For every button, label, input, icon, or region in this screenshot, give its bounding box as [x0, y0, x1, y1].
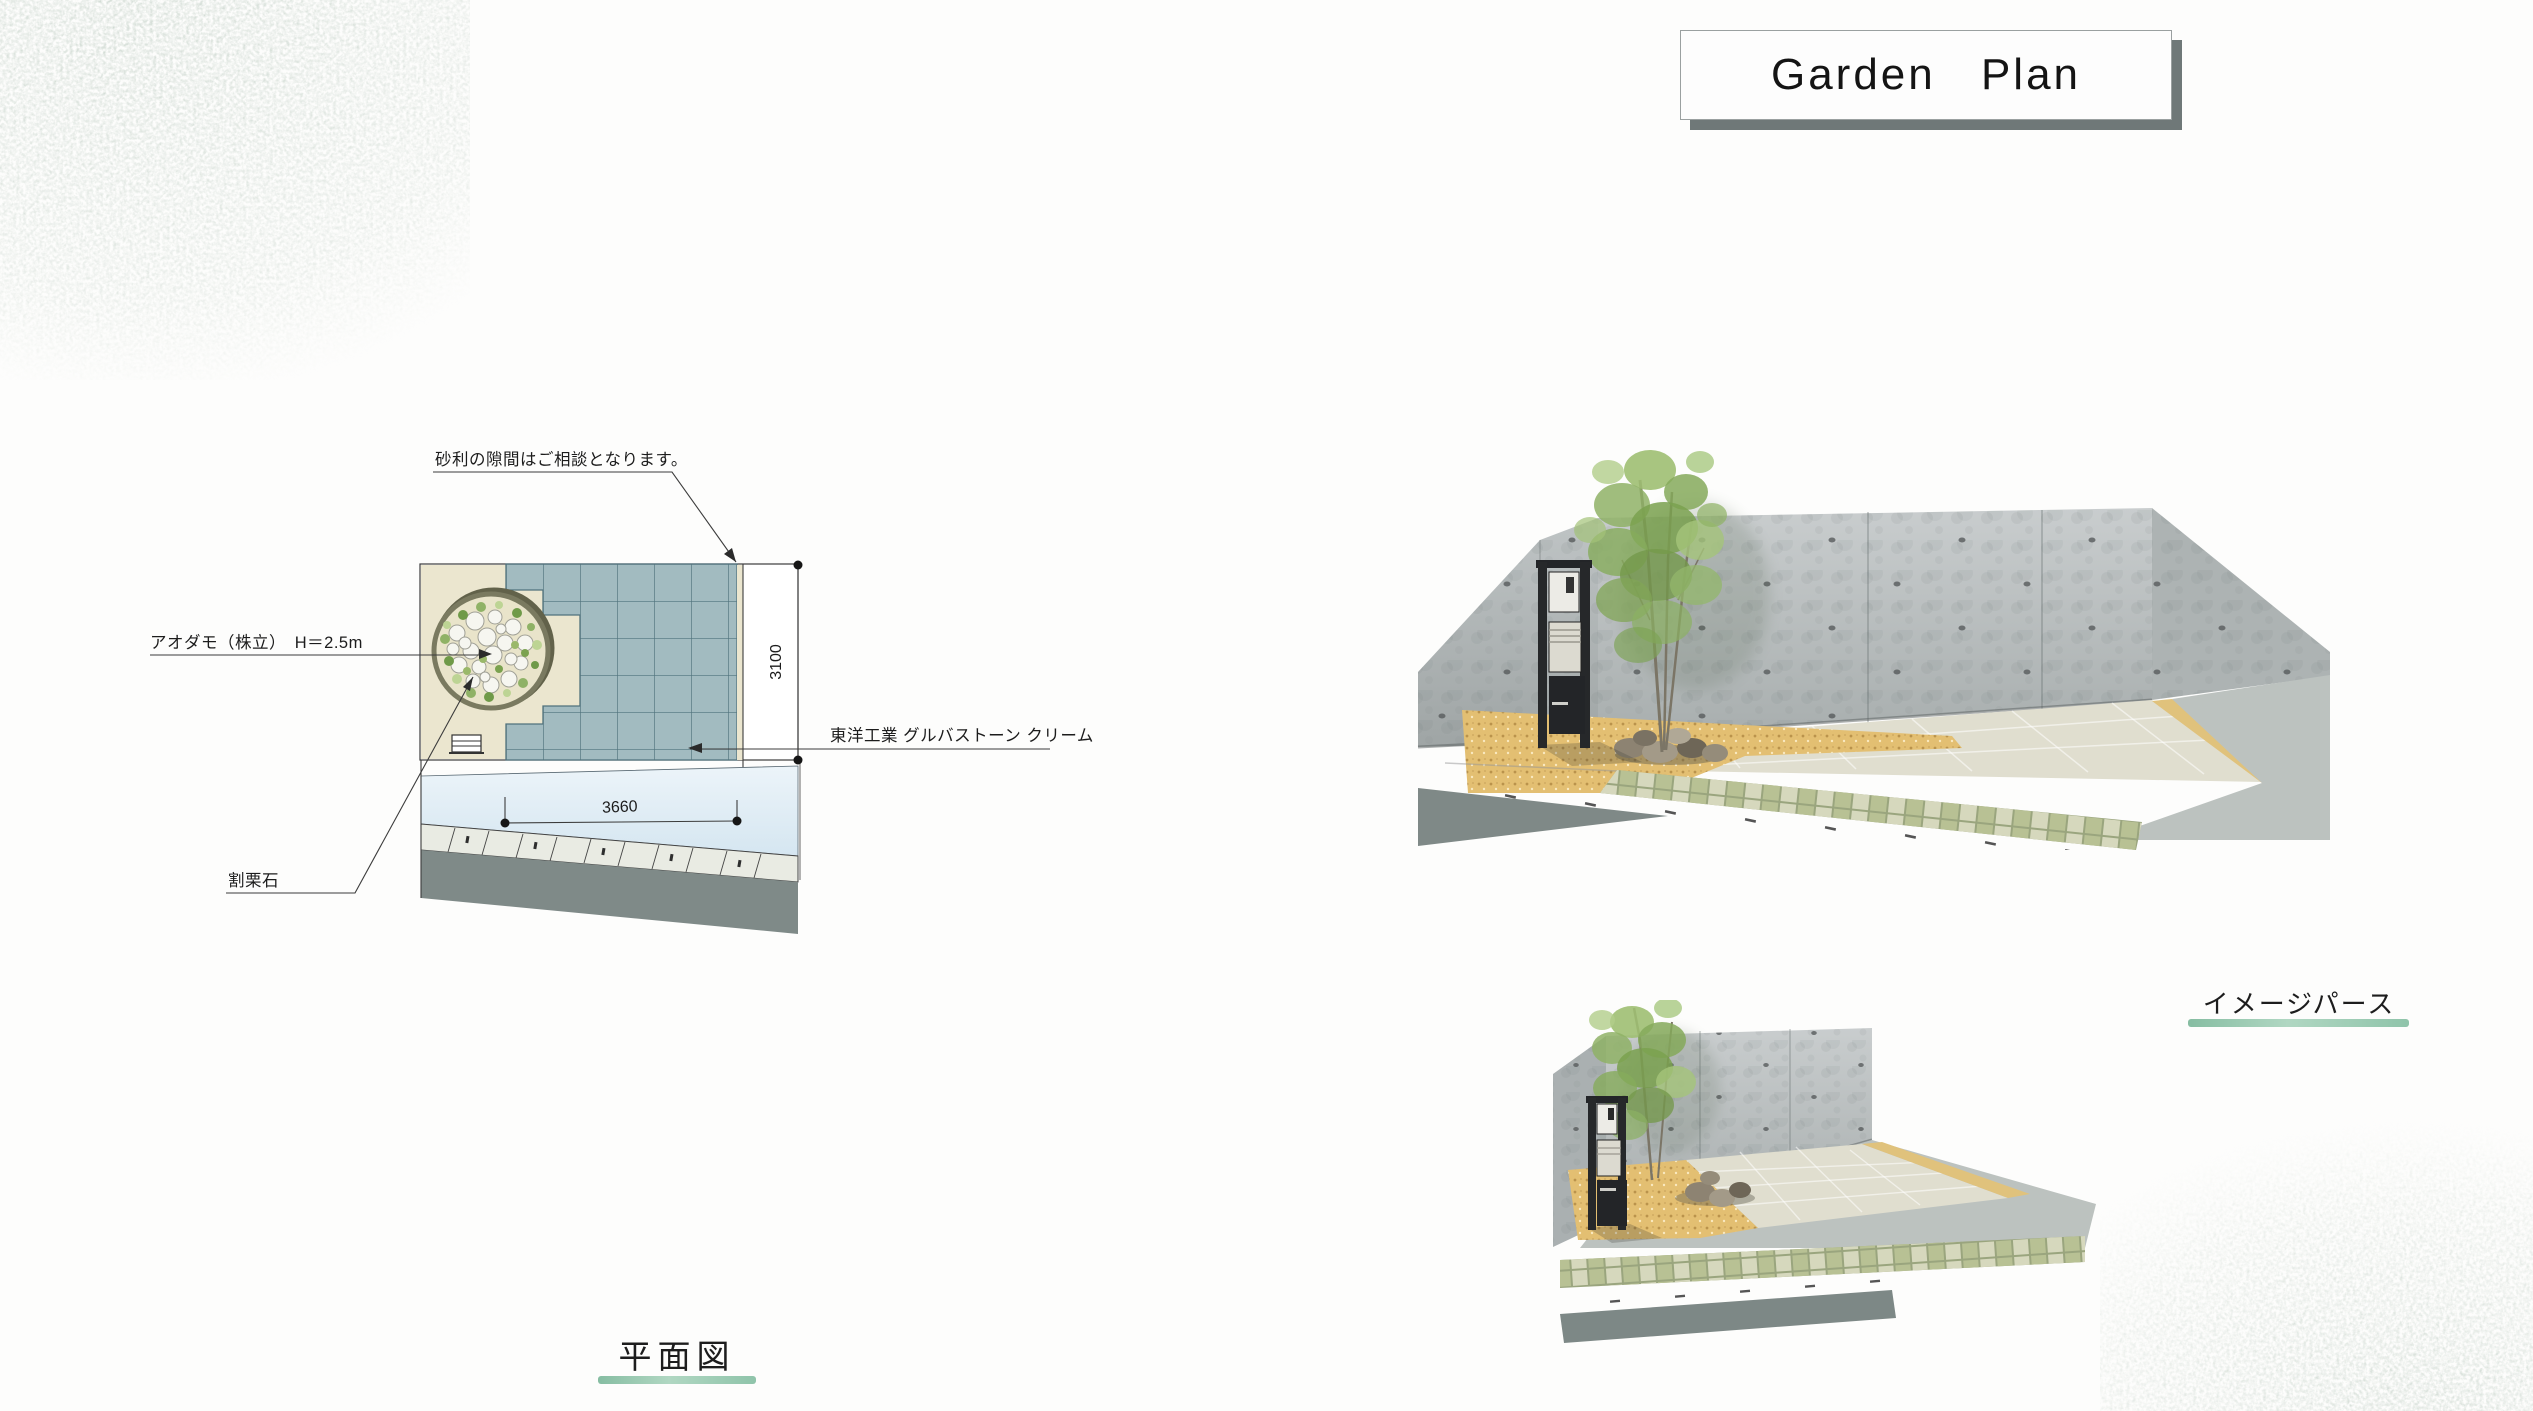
tree-label-text: アオダモ（株立） H＝2.5m	[150, 633, 363, 652]
perspective-section-underline	[2188, 1019, 2409, 1027]
plan-bench	[449, 735, 484, 753]
paving-label-text: 東洋工業 グルバストーン クリーム	[830, 726, 1094, 745]
title-box: Garden Plan	[1680, 30, 2172, 120]
gravel-note-text: 砂利の隙間はご相談となります。	[435, 450, 688, 469]
plan-tree-circle	[434, 591, 551, 708]
plan-section-label: 平面図	[598, 1330, 756, 1378]
render-bottom-street	[1560, 1236, 2085, 1343]
dimension-3100-text: 3100	[768, 644, 785, 680]
dimension-3660-text: 3660	[602, 798, 638, 817]
plan-annotation-gravel-note: 砂利の隙間はご相談となります。	[433, 450, 736, 562]
page-title: Garden Plan	[1771, 50, 2081, 100]
garden-plan-sheet: Garden Plan	[0, 0, 2533, 1411]
plan-section-underline	[598, 1376, 756, 1384]
perspective-section-label: イメージパース	[2186, 984, 2412, 1021]
plan-road-section: 3660	[421, 760, 800, 934]
perspective-render-bottom	[1535, 1000, 2225, 1345]
watercolor-texture-top-left	[0, 0, 470, 380]
crushed-stone-text: 割栗石	[228, 871, 279, 890]
perspective-render-top	[1395, 445, 2335, 850]
plan-view-drawing: 3660 3100 砂利の隙間はご相談となります。 アオダモ（株立） H＝2.5…	[130, 430, 1170, 990]
